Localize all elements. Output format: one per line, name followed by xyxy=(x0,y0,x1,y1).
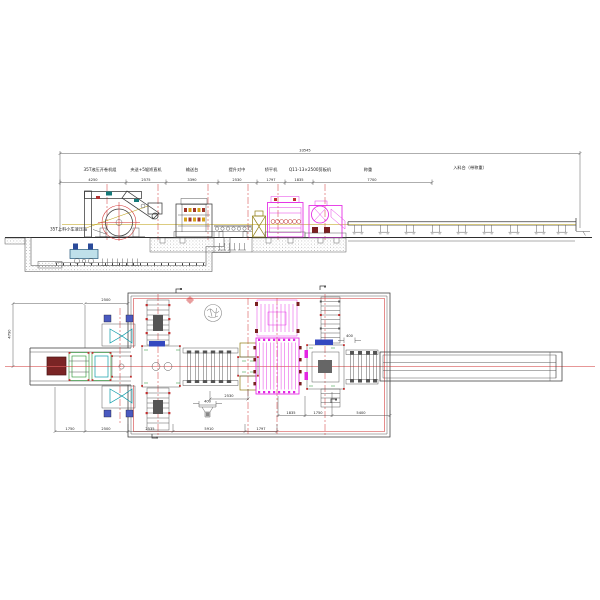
coil-car-elevation xyxy=(70,244,98,264)
elevation-dimension-chain: 4250 2575 3390 2530 1797 1835 7700 xyxy=(59,178,434,185)
dim-inner-3: 5400 xyxy=(356,411,366,415)
seal-stamp xyxy=(205,305,222,322)
dim-seg-1: 4250 xyxy=(88,178,98,182)
label-conveyor: 输送台 xyxy=(186,166,199,173)
pit-label: 35T上料小车液压站 xyxy=(50,226,87,233)
centering-stand-elevation xyxy=(253,211,266,237)
elevation-overall-dimension: 33545 xyxy=(59,149,582,233)
plan-view: 400 400 xyxy=(5,286,595,439)
dim-plan-width: 4790 xyxy=(8,329,12,339)
dim-bottom-2: 2500 xyxy=(101,427,111,431)
dim-seg-4: 2530 xyxy=(232,178,242,182)
dim-inner-1: 1835 xyxy=(286,411,295,415)
section-marks xyxy=(152,286,336,438)
dim-total: 33545 xyxy=(299,149,310,153)
label-shear: Q11-13×2500剪板机 xyxy=(289,166,332,173)
uncoiler-plan xyxy=(102,315,135,417)
dim-seg-3: 3390 xyxy=(187,178,197,182)
uncoiler-elevation xyxy=(85,191,163,241)
leveler-plan xyxy=(253,300,301,394)
dim-seg-2: 2575 xyxy=(141,178,150,182)
straightener-elevation xyxy=(174,199,214,238)
coil-plan xyxy=(47,357,66,375)
drawing-canvas: 33545 35T液压开卷机组 夹送+5辊矫直机 输送台 提升对中 矫平机 Q1… xyxy=(0,0,600,600)
cad-sheet: 33545 35T液压开卷机组 夹送+5辊矫直机 输送台 提升对中 矫平机 Q1… xyxy=(0,0,600,600)
dim-seg-6: 1835 xyxy=(294,178,303,182)
dim-mid-span: 2530 xyxy=(224,394,234,398)
dim-bottom-1: 1750 xyxy=(65,427,75,431)
dim-seg-7: 7700 xyxy=(367,178,377,182)
drain-plan: 400 xyxy=(193,400,222,418)
label-weighing: 称重 xyxy=(364,166,372,173)
dim-drain: 400 xyxy=(204,400,212,404)
shear-elevation xyxy=(305,201,346,238)
label-leveler: 矫平机 xyxy=(265,166,278,173)
dim-bottom-3: 2535 xyxy=(145,427,154,431)
elevation-machine-labels: 35T液压开卷机组 夹送+5辊矫直机 输送台 提升对中 矫平机 Q11-13×2… xyxy=(83,164,486,173)
dim-bottom-4: 5910 xyxy=(204,427,214,431)
foundation-elevation xyxy=(150,238,346,252)
label-infeed-table: 入料台（带称重） xyxy=(453,164,487,171)
shear-plan xyxy=(305,297,345,407)
dim-bottom-5: 1797 xyxy=(256,427,265,431)
dim-inner-2: 1750 xyxy=(313,411,323,415)
infeed-table-elevation xyxy=(348,218,576,234)
label-centering: 提升对中 xyxy=(229,166,246,173)
label-straightener: 夹送+5辊矫直机 xyxy=(130,166,162,173)
roller-table-elevation xyxy=(214,226,252,238)
leveler-elevation xyxy=(265,197,305,238)
datum-marker xyxy=(186,296,194,304)
dim-seg-5: 1797 xyxy=(266,178,275,182)
straightener-plan xyxy=(141,300,181,430)
label-uncoiler: 35T液压开卷机组 xyxy=(83,166,116,173)
dim-roller-gap: 400 xyxy=(346,334,354,338)
elevation-view: 33545 35T液压开卷机组 夹送+5辊矫直机 输送台 提升对中 矫平机 Q1… xyxy=(5,149,592,272)
dim-track-width: 2500 xyxy=(101,298,111,302)
